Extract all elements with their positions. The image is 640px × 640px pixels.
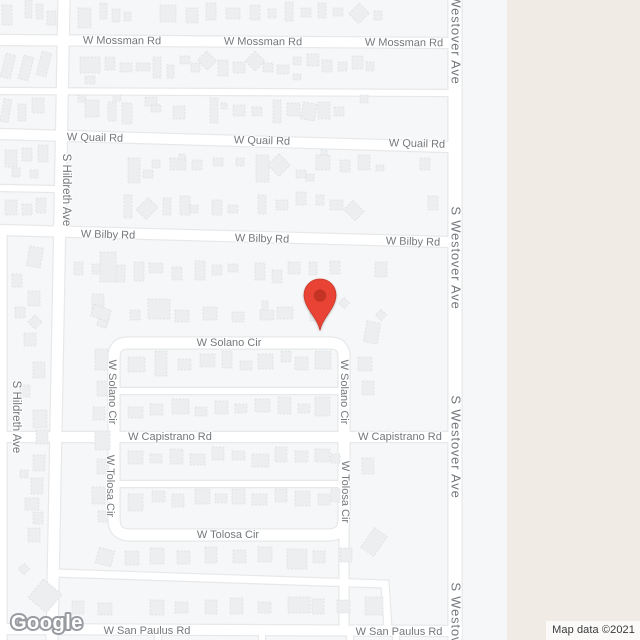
building — [218, 60, 228, 76]
building — [315, 351, 331, 369]
building — [258, 602, 271, 613]
building — [275, 447, 287, 462]
building — [295, 357, 308, 370]
building — [78, 8, 91, 28]
building — [375, 262, 387, 277]
building — [124, 12, 131, 21]
building — [236, 158, 244, 166]
building — [97, 381, 109, 396]
building — [25, 498, 39, 510]
map-viewport[interactable]: W Mossman RdW Mossman RdW Mossman RdW Qu… — [0, 0, 640, 640]
building — [428, 196, 438, 210]
building — [215, 401, 228, 414]
building — [206, 3, 216, 20]
building — [226, 8, 240, 19]
building — [152, 160, 160, 168]
google-logo-text: Google — [11, 612, 83, 634]
building — [228, 264, 238, 272]
building — [256, 155, 269, 182]
building — [222, 351, 232, 368]
building — [250, 5, 260, 20]
building — [340, 548, 352, 562]
building — [33, 455, 45, 471]
building — [38, 145, 48, 162]
building — [18, 104, 26, 121]
building — [97, 459, 109, 474]
building — [278, 397, 291, 414]
building — [205, 600, 217, 614]
building — [98, 511, 108, 522]
building — [24, 333, 36, 346]
building — [32, 98, 44, 113]
building — [148, 299, 170, 319]
building — [277, 307, 293, 319]
building — [12, 168, 20, 177]
building — [190, 454, 205, 465]
building — [180, 56, 190, 64]
building — [128, 494, 143, 511]
building — [192, 160, 202, 170]
building — [124, 195, 132, 218]
building — [128, 158, 140, 183]
building — [293, 74, 301, 80]
building — [360, 95, 368, 103]
map-attribution: Map data ©2021 — [546, 621, 640, 640]
building — [125, 551, 139, 565]
building — [2, 5, 12, 25]
building — [306, 174, 314, 181]
building — [358, 357, 372, 371]
building — [228, 205, 238, 213]
building — [113, 95, 121, 101]
building — [30, 170, 38, 178]
building — [47, 11, 56, 25]
building — [128, 357, 145, 372]
building — [74, 262, 83, 275]
building — [205, 547, 217, 563]
building — [315, 397, 330, 416]
building — [252, 494, 267, 505]
building — [167, 65, 174, 78]
building — [275, 489, 287, 502]
building — [262, 301, 268, 310]
building — [318, 494, 330, 505]
building — [315, 449, 330, 462]
building — [28, 291, 40, 306]
building — [195, 261, 205, 280]
building — [285, 2, 293, 21]
building — [333, 8, 343, 16]
building — [316, 195, 324, 205]
building — [172, 399, 189, 414]
map-pin[interactable] — [303, 278, 337, 337]
building — [352, 56, 363, 69]
building — [212, 200, 222, 215]
building — [25, 0, 32, 18]
building — [136, 63, 150, 71]
building — [316, 155, 330, 170]
building — [22, 204, 32, 215]
building — [175, 310, 189, 322]
building — [173, 106, 185, 119]
building — [233, 105, 245, 116]
building — [151, 105, 161, 112]
building — [150, 454, 162, 463]
building — [149, 263, 163, 273]
building — [5, 150, 17, 167]
building — [95, 349, 108, 370]
building — [288, 597, 310, 613]
building — [287, 103, 300, 116]
building — [293, 57, 301, 65]
building — [85, 76, 95, 84]
building — [20, 385, 30, 397]
building — [152, 491, 165, 502]
building — [98, 603, 112, 615]
building — [100, 252, 116, 282]
building — [120, 63, 132, 72]
building — [272, 270, 282, 283]
building — [232, 451, 245, 460]
building — [163, 198, 171, 215]
building — [362, 381, 374, 395]
building — [191, 63, 200, 72]
building — [233, 62, 245, 73]
building — [92, 487, 105, 504]
building — [36, 430, 48, 444]
building — [230, 598, 243, 614]
building — [85, 100, 99, 117]
google-logo[interactable]: Google — [9, 609, 89, 635]
building — [295, 451, 308, 462]
building — [277, 65, 289, 74]
building — [301, 8, 311, 17]
building — [172, 494, 184, 507]
building — [12, 274, 22, 287]
building — [215, 494, 227, 503]
building — [331, 489, 340, 502]
building — [322, 60, 332, 72]
building — [252, 454, 269, 467]
building — [281, 351, 291, 362]
building — [155, 351, 167, 376]
building — [365, 597, 383, 615]
building — [221, 103, 227, 109]
offmap-region — [507, 0, 640, 640]
building — [240, 361, 252, 370]
building — [288, 262, 300, 274]
building — [287, 549, 307, 569]
building — [170, 449, 183, 464]
building — [233, 550, 246, 563]
building — [33, 410, 47, 428]
building — [100, 3, 107, 19]
building — [190, 205, 198, 213]
building — [213, 158, 223, 166]
building — [318, 102, 330, 119]
map-pin-icon — [303, 278, 337, 332]
building — [321, 149, 327, 155]
building — [178, 359, 191, 370]
building — [331, 454, 340, 463]
building — [295, 491, 310, 506]
building — [117, 265, 125, 282]
building — [273, 100, 281, 123]
building — [258, 354, 273, 369]
building — [330, 261, 340, 274]
building — [15, 307, 25, 318]
building — [153, 57, 161, 78]
building — [301, 102, 318, 121]
building — [179, 154, 185, 160]
building — [203, 307, 217, 320]
building — [80, 57, 100, 73]
building — [276, 200, 288, 210]
building — [296, 192, 306, 205]
building — [307, 54, 319, 66]
building — [252, 107, 262, 116]
building — [108, 102, 116, 121]
building — [128, 407, 143, 418]
building — [232, 312, 244, 322]
building — [358, 155, 370, 170]
building — [36, 4, 43, 19]
building — [160, 5, 176, 22]
building — [376, 165, 384, 171]
building — [186, 8, 198, 23]
building — [36, 198, 46, 213]
building — [255, 399, 270, 412]
building — [338, 62, 347, 71]
building — [340, 160, 350, 172]
building — [105, 57, 115, 70]
building — [180, 196, 190, 215]
building — [337, 600, 350, 613]
building — [318, 3, 326, 18]
building — [212, 265, 222, 275]
building — [235, 404, 247, 413]
building — [20, 470, 28, 478]
building — [366, 62, 374, 71]
building — [33, 512, 43, 524]
building — [195, 407, 207, 416]
building — [374, 11, 382, 20]
building — [150, 600, 164, 615]
building — [212, 447, 224, 460]
building — [296, 170, 306, 178]
building — [298, 404, 310, 413]
building — [28, 528, 40, 542]
building — [210, 98, 218, 123]
road-alley-west — [0, 188, 56, 189]
building — [93, 407, 105, 420]
building — [330, 200, 343, 210]
building — [143, 170, 153, 178]
building — [172, 267, 182, 280]
building — [309, 262, 317, 275]
building — [268, 9, 276, 18]
building — [258, 195, 266, 214]
building — [122, 103, 132, 124]
building — [263, 63, 273, 72]
building — [150, 404, 163, 415]
building — [150, 548, 164, 564]
building — [260, 310, 274, 320]
building — [130, 310, 140, 320]
building — [420, 158, 430, 170]
building — [195, 489, 210, 504]
building — [128, 451, 143, 464]
building — [134, 262, 144, 281]
building — [200, 354, 215, 367]
building — [258, 547, 272, 562]
building — [362, 458, 374, 474]
building — [232, 489, 245, 504]
building — [78, 95, 86, 102]
building — [312, 599, 324, 614]
building — [95, 431, 110, 450]
building — [175, 602, 188, 613]
building — [5, 200, 17, 215]
building — [33, 362, 45, 378]
building — [313, 551, 325, 563]
building — [22, 148, 32, 161]
building — [112, 9, 120, 22]
building — [255, 263, 265, 280]
building — [31, 478, 43, 494]
building — [177, 551, 190, 564]
building — [334, 107, 344, 116]
